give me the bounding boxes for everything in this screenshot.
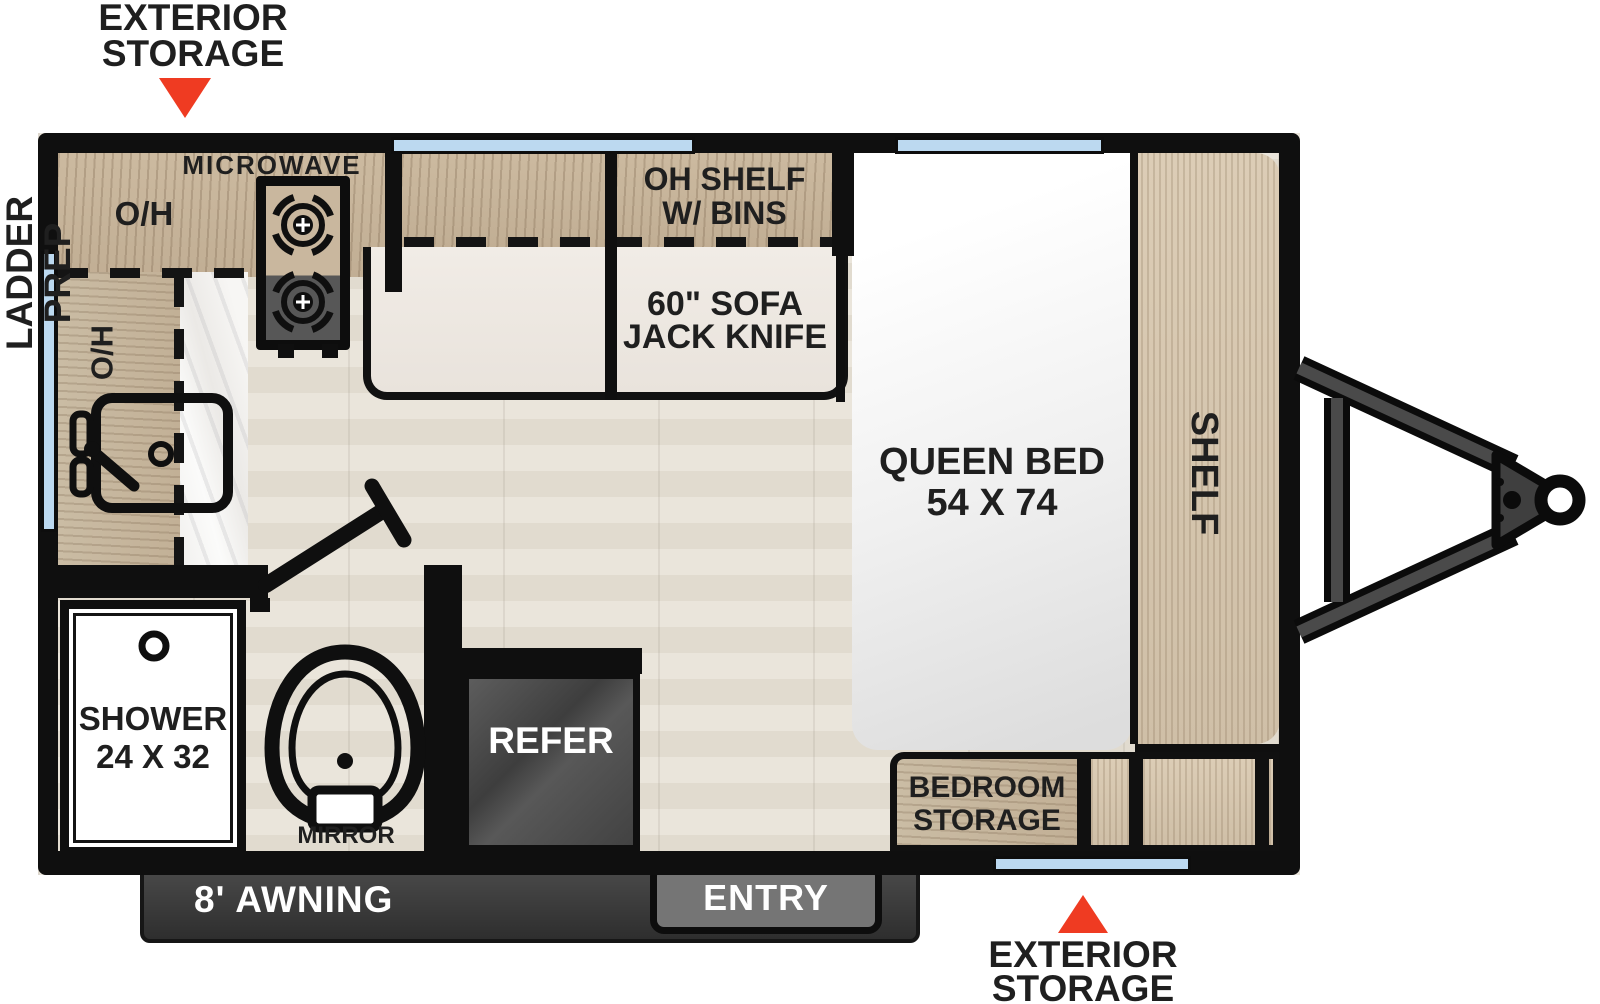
refrigerator-label: REFER [462, 722, 640, 760]
microwave-label: MICROWAVE [160, 152, 384, 179]
bedroom-storage-label: BEDROOM STORAGE [890, 771, 1084, 837]
window [993, 856, 1191, 872]
floorplan-page: 8' AWNING ENTRY EXTERIOR STO [0, 0, 1600, 1004]
ladder-prep-label: LADDER PREP [1, 143, 39, 403]
trailer-hitch-icon [1299, 368, 1579, 632]
overhead-cabinet-left-label: O/H [87, 308, 120, 398]
oh-shelf-label: OH SHELF W/ BINS [617, 162, 832, 230]
shower-label: SHOWER 24 X 32 [69, 700, 237, 776]
exterior-storage-bottom-label: EXTERIOR STORAGE [968, 938, 1198, 1004]
sofa-label: 60" SOFA JACK KNIFE [610, 288, 840, 354]
exterior-storage-top-label: EXTERIOR STORAGE [78, 0, 308, 72]
arrow-up-icon [1058, 895, 1108, 933]
window [391, 137, 695, 154]
queen-bed-label: QUEEN BED 54 X 74 [852, 442, 1132, 524]
shelf-label: SHELF [1183, 373, 1223, 573]
entry-label: ENTRY [703, 877, 829, 919]
window [895, 137, 1104, 154]
overhead-cabinet-label: O/H [99, 197, 189, 231]
mirror-label: MIRROR [280, 824, 412, 848]
arrow-down-icon [159, 78, 211, 118]
